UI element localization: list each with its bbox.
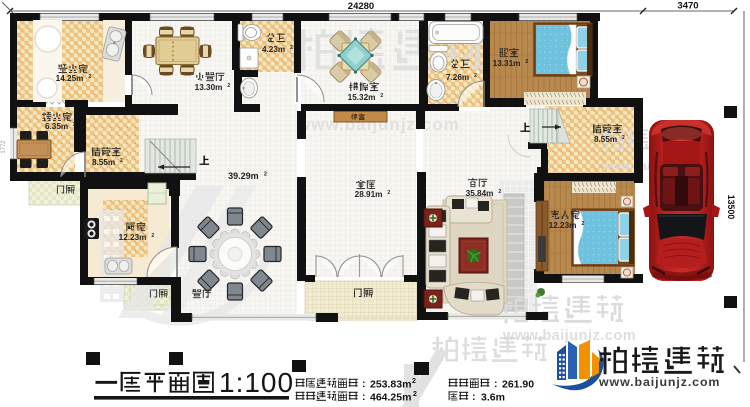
svg-text:4.23m: 4.23m: [262, 45, 285, 54]
svg-text:3470: 3470: [677, 1, 698, 12]
svg-text:15.32m: 15.32m: [348, 93, 376, 102]
svg-text:2: 2: [73, 122, 76, 128]
svg-text::: :: [472, 391, 476, 403]
svg-text:2: 2: [581, 221, 584, 227]
svg-text:35.84m: 35.84m: [466, 189, 494, 198]
svg-text:13500: 13500: [726, 195, 736, 220]
svg-text:7.26m: 7.26m: [446, 73, 469, 82]
svg-text::: :: [494, 378, 498, 390]
svg-text:12.23m: 12.23m: [119, 233, 147, 242]
svg-text:2: 2: [380, 93, 383, 99]
svg-text::: :: [362, 391, 366, 403]
svg-text:464.25m: 464.25m: [370, 392, 411, 404]
svg-text:3.6m: 3.6m: [481, 392, 505, 404]
svg-text:2: 2: [120, 158, 123, 164]
svg-text:2: 2: [498, 189, 501, 195]
svg-text:8.55m: 8.55m: [92, 158, 115, 167]
svg-text:1:100: 1:100: [219, 367, 294, 398]
svg-text:2: 2: [387, 190, 390, 196]
svg-text:2: 2: [412, 378, 416, 385]
svg-text:www.baijunjz.com: www.baijunjz.com: [598, 375, 720, 389]
svg-text:12.23m: 12.23m: [549, 221, 577, 230]
svg-text:14.25m: 14.25m: [56, 74, 84, 83]
svg-text:39.29m: 39.29m: [228, 171, 259, 181]
svg-text:2: 2: [264, 172, 267, 178]
svg-text:2: 2: [622, 135, 625, 141]
svg-text:28.91m: 28.91m: [355, 190, 383, 199]
svg-text:2: 2: [474, 73, 477, 79]
svg-text:2: 2: [227, 83, 230, 89]
svg-text::: :: [362, 378, 366, 390]
svg-text:2: 2: [151, 233, 154, 239]
svg-text:261.90: 261.90: [502, 379, 534, 391]
svg-text:13.31m: 13.31m: [493, 59, 521, 68]
svg-text:24280: 24280: [348, 1, 374, 12]
svg-text:6.35m: 6.35m: [45, 122, 68, 131]
svg-text:2: 2: [290, 45, 293, 51]
svg-text:8.55m: 8.55m: [594, 135, 617, 144]
svg-text:www.baijunjz.com: www.baijunjz.com: [502, 328, 636, 344]
svg-text:253.83m: 253.83m: [370, 379, 411, 391]
svg-text:2: 2: [413, 391, 417, 398]
svg-text:1772: 1772: [1, 140, 7, 154]
svg-text:2: 2: [88, 74, 91, 80]
svg-text:13.30m: 13.30m: [195, 83, 223, 92]
svg-text:2: 2: [525, 59, 528, 65]
